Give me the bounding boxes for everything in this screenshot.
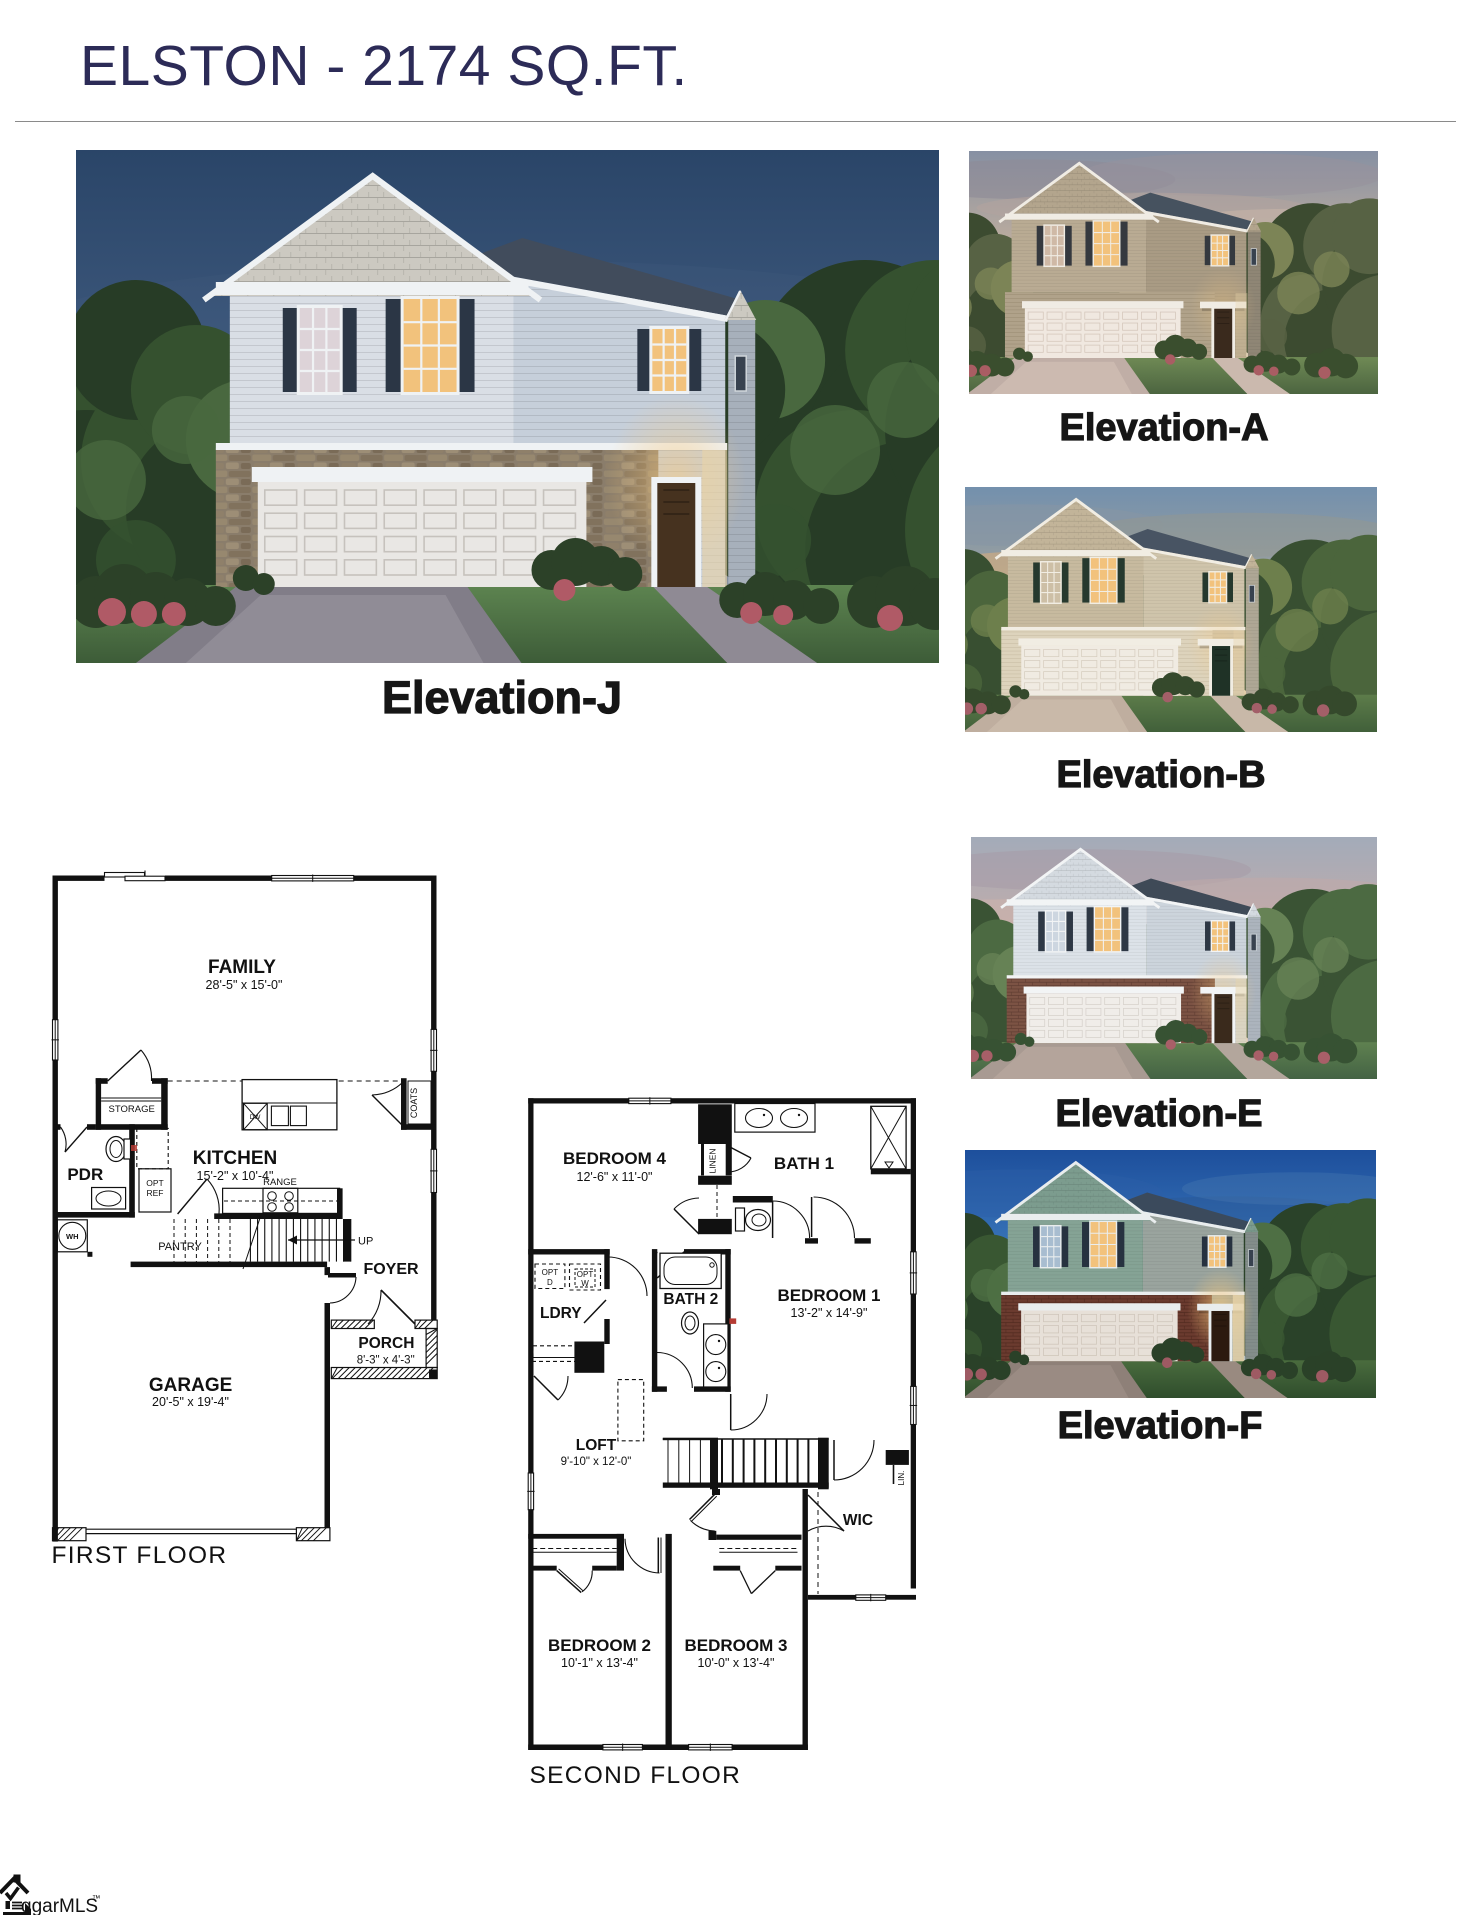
svg-text:COATS: COATS (409, 1088, 419, 1118)
svg-text:PORCH: PORCH (358, 1335, 414, 1352)
svg-text:LIN.: LIN. (897, 1471, 906, 1486)
svg-text:OPT: OPT (146, 1178, 163, 1188)
svg-text:REF: REF (147, 1188, 164, 1198)
svg-text:STORAGE: STORAGE (109, 1104, 155, 1115)
svg-text:28'-5" x 15'-0": 28'-5" x 15'-0" (206, 978, 283, 992)
svg-text:13'-2" x 14'-9": 13'-2" x 14'-9" (791, 1306, 868, 1320)
svg-text:D: D (547, 1278, 553, 1287)
svg-text:FIRST FLOOR: FIRST FLOOR (52, 1542, 228, 1569)
svg-text:OPT: OPT (542, 1268, 559, 1277)
svg-text:BEDROOM 3: BEDROOM 3 (685, 1636, 788, 1655)
svg-text:20'-5" x 19'-4": 20'-5" x 19'-4" (152, 1395, 229, 1409)
svg-text:FAMILY: FAMILY (208, 957, 276, 978)
svg-text:™: ™ (92, 1893, 101, 1903)
svg-text:WH: WH (66, 1232, 79, 1241)
svg-text:12'-6" x 11'-0": 12'-6" x 11'-0" (577, 1170, 653, 1184)
svg-text:LDRY: LDRY (540, 1305, 582, 1322)
svg-text:DW: DW (250, 1114, 262, 1121)
svg-text:BEDROOM 4: BEDROOM 4 (563, 1149, 667, 1168)
svg-text:OPT: OPT (577, 1270, 594, 1279)
svg-text:WIC: WIC (843, 1512, 873, 1529)
svg-text:FOYER: FOYER (363, 1261, 419, 1278)
svg-text:LOFT: LOFT (576, 1437, 617, 1454)
svg-text:GARAGE: GARAGE (149, 1375, 232, 1396)
svg-text:9'-10" x 12'-0": 9'-10" x 12'-0" (561, 1456, 632, 1468)
svg-text:UP: UP (358, 1236, 373, 1248)
svg-text:BEDROOM 1: BEDROOM 1 (778, 1286, 881, 1305)
svg-text:PANTRY: PANTRY (158, 1241, 202, 1253)
svg-text:RANGE: RANGE (263, 1177, 297, 1188)
svg-text:W: W (581, 1279, 589, 1288)
svg-text:KITCHEN: KITCHEN (193, 1148, 277, 1169)
svg-text:ggarMLS: ggarMLS (21, 1896, 98, 1915)
svg-text:BATH 1: BATH 1 (774, 1154, 834, 1173)
svg-text:10'-0" x 13'-4": 10'-0" x 13'-4" (698, 1656, 775, 1670)
svg-text:10'-1" x 13'-4": 10'-1" x 13'-4" (561, 1656, 638, 1670)
svg-text:LINEN: LINEN (708, 1148, 718, 1173)
svg-text:8'-3" x 4'-3": 8'-3" x 4'-3" (357, 1355, 415, 1367)
svg-text:BATH 2: BATH 2 (663, 1291, 718, 1308)
svg-text:BEDROOM 2: BEDROOM 2 (548, 1636, 651, 1655)
svg-text:SECOND FLOOR: SECOND FLOOR (530, 1762, 742, 1789)
svg-text:PDR: PDR (67, 1165, 103, 1184)
